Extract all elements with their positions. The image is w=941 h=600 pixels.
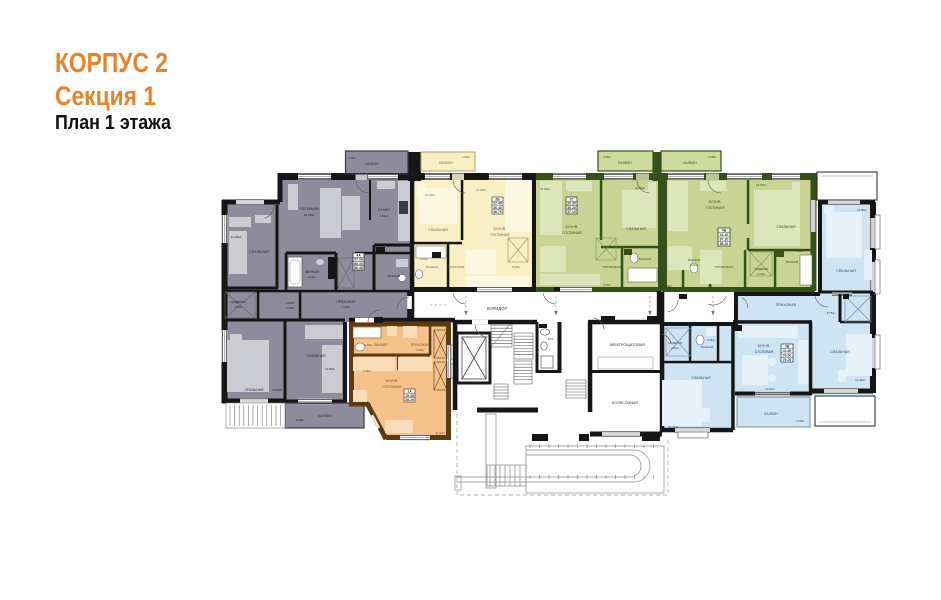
svg-text:79.29: 79.29 <box>783 358 792 362</box>
svg-text:ВАННАЯ: ВАННАЯ <box>701 345 713 349</box>
svg-text:3.40м²: 3.40м² <box>690 263 698 267</box>
svg-text:КОРИДОР: КОРИДОР <box>487 306 508 311</box>
svg-text:ВАННАЯ: ВАННАЯ <box>688 258 700 262</box>
svg-text:ПРИХОЖАЯ: ПРИХОЖАЯ <box>448 265 465 269</box>
svg-text:ВАННАЯ: ВАННАЯ <box>374 343 388 347</box>
svg-text:ВАННАЯ: ВАННАЯ <box>426 265 438 269</box>
svg-text:БАЛКОН: БАЛКОН <box>439 161 453 165</box>
svg-text:БАЛКОН: БАЛКОН <box>365 162 379 166</box>
svg-text:ГАРДЕРОБ: ГАРДЕРОБ <box>754 267 769 271</box>
svg-text:10.40м²: 10.40м² <box>765 387 775 391</box>
svg-text:12.45м²: 12.45м² <box>855 378 865 382</box>
svg-text:36.70: 36.70 <box>493 210 502 214</box>
svg-text:КУХНЯ-: КУХНЯ- <box>709 200 723 204</box>
svg-text:12.55м²: 12.55м² <box>272 388 282 392</box>
svg-text:БАЛКОН: БАЛКОН <box>683 161 697 165</box>
svg-text:3В: 3В <box>785 345 790 349</box>
svg-text:4.10м²: 4.10м² <box>308 275 316 279</box>
svg-text:87.20: 87.20 <box>720 238 729 242</box>
svg-text:КУХНЯ-: КУХНЯ- <box>566 225 580 229</box>
svg-text:37.10: 37.10 <box>567 210 576 214</box>
svg-text:КУХНЯ-: КУХНЯ- <box>494 227 508 231</box>
svg-text:2.60м²: 2.60м² <box>671 346 679 350</box>
svg-text:ВАННАЯ: ВАННАЯ <box>305 270 319 274</box>
svg-text:6.80м²: 6.80м² <box>380 214 389 218</box>
svg-text:5.00м²: 5.00м² <box>512 265 520 269</box>
svg-text:ПРИХОЖАЯ: ПРИХОЖАЯ <box>336 300 356 304</box>
svg-text:4.00м²: 4.00м² <box>664 284 672 288</box>
svg-text:ВАННАЯ: ВАННАЯ <box>639 257 651 261</box>
svg-text:3.55м²: 3.55м² <box>234 305 242 309</box>
svg-text:КУХНЯ-: КУХНЯ- <box>758 344 770 348</box>
svg-text:ПРИХОЖАЯ: ПРИХОЖАЯ <box>776 303 797 307</box>
svg-text:5.05м²: 5.05м² <box>363 369 371 373</box>
svg-text:ГОСТИНАЯ: ГОСТИНАЯ <box>706 206 725 210</box>
svg-text:5.20м²: 5.20м² <box>286 306 294 310</box>
svg-text:12.55м²: 12.55м² <box>325 367 335 371</box>
svg-text:4Б: 4Б <box>722 229 727 233</box>
svg-text:ВАННАЯ: ВАННАЯ <box>786 260 798 264</box>
svg-text:СПАЛЬНАЯ: СПАЛЬНАЯ <box>836 269 856 273</box>
svg-text:13.20м²: 13.20м² <box>231 235 242 239</box>
svg-text:СПАЛЬНАЯ: СПАЛЬНАЯ <box>307 354 326 358</box>
svg-text:ВАННАЯ: ВАННАЯ <box>388 274 400 278</box>
svg-text:88.45: 88.45 <box>354 266 363 270</box>
svg-text:13.70м²: 13.70м² <box>756 183 766 187</box>
svg-text:СТОЛОВАЯ: СТОЛОВАЯ <box>755 350 774 354</box>
svg-text:4.20м²: 4.20м² <box>420 257 428 261</box>
svg-text:4.20м²: 4.20м² <box>796 419 804 423</box>
svg-text:ПРИХОЖАЯ: ПРИХОЖАЯ <box>411 343 430 347</box>
svg-text:КОРПУС 2: КОРПУС 2 <box>55 47 168 78</box>
svg-text:11.20м²: 11.20м² <box>435 431 444 435</box>
svg-text:28.20: 28.20 <box>405 398 414 402</box>
svg-text:ЭЛЕКТРОЩИТОВАЯ: ЭЛЕКТРОЩИТОВАЯ <box>609 343 645 347</box>
svg-text:3.00м²: 3.00м² <box>416 348 424 352</box>
svg-text:7.20м²: 7.20м² <box>342 305 350 309</box>
svg-text:КУХ.: КУХ. <box>548 337 555 341</box>
svg-text:4.10м²: 4.10м² <box>364 343 372 347</box>
svg-text:План 1 этажа: План 1 этажа <box>55 112 172 134</box>
svg-text:КУХНЯ: КУХНЯ <box>378 208 390 212</box>
svg-text:Секция 1: Секция 1 <box>55 81 156 111</box>
svg-text:КОЛЛ: КОЛЛ <box>286 301 294 305</box>
svg-text:13.30м²: 13.30м² <box>476 188 486 192</box>
svg-text:СПАЛЬНАЯ: СПАЛЬНАЯ <box>691 376 711 380</box>
svg-text:ГОСТИНАЯ: ГОСТИНАЯ <box>300 207 319 211</box>
svg-text:КУХНЯ-: КУХНЯ- <box>386 379 400 383</box>
svg-text:13.40м²: 13.40м² <box>857 208 867 212</box>
svg-text:СПАЛЬНАЯ: СПАЛЬНАЯ <box>830 350 850 354</box>
svg-text:41.60: 41.60 <box>783 349 792 353</box>
svg-text:БАЛКОН: БАЛКОН <box>318 414 332 418</box>
svg-text:БАЛКОН: БАЛКОН <box>764 412 778 416</box>
svg-text:СПАЛЬНАЯ: СПАЛЬНАЯ <box>428 228 448 232</box>
svg-text:13.90м²: 13.90м² <box>540 187 550 191</box>
svg-text:ГАРДЕРОБ: ГАРДЕРОБ <box>668 341 683 345</box>
svg-text:8.75м²: 8.75м² <box>827 311 835 315</box>
svg-text:СПАЛЬНАЯ: СПАЛЬНАЯ <box>626 227 646 231</box>
svg-text:ПРИХОЖАЯ: ПРИХОЖАЯ <box>603 265 620 269</box>
svg-text:ГОСТИНАЯ: ГОСТИНАЯ <box>383 385 402 389</box>
svg-text:4.30м²: 4.30м² <box>296 418 304 422</box>
svg-text:СПАЛЬНАЯ: СПАЛЬНАЯ <box>245 388 264 392</box>
svg-text:5.00м²: 5.00м² <box>603 283 611 287</box>
svg-text:3.15м²: 3.15м² <box>707 338 715 342</box>
svg-text:78.00: 78.00 <box>783 354 792 358</box>
svg-text:88.40: 88.40 <box>720 242 729 246</box>
svg-text:43.40: 43.40 <box>720 233 729 237</box>
svg-text:КОЛЯСОЧНАЯ: КОЛЯСОЧНАЯ <box>612 401 638 405</box>
svg-text:18.70м²: 18.70м² <box>304 213 315 217</box>
svg-text:3.05м²: 3.05м² <box>708 155 716 159</box>
svg-text:10.10м²: 10.10м² <box>425 193 435 197</box>
svg-text:ПРИХОЖАЯ: ПРИХОЖАЯ <box>715 265 732 269</box>
svg-text:2.00м²: 2.00м² <box>757 272 765 276</box>
svg-text:3.05м²: 3.05м² <box>603 155 611 159</box>
svg-text:4.00м²: 4.00м² <box>796 249 804 253</box>
svg-text:ГОСТИНАЯ: ГОСТИНАЯ <box>491 233 510 237</box>
svg-text:БАЛКОН: БАЛКОН <box>618 161 632 165</box>
svg-text:10.25м²: 10.25м² <box>668 425 678 429</box>
svg-text:ГОСТИНАЯ: ГОСТИНАЯ <box>563 231 582 235</box>
svg-text:3.05м²: 3.05м² <box>462 155 470 159</box>
svg-text:10.10м²: 10.10м² <box>635 186 645 190</box>
svg-text:СПАЛЬНАЯ: СПАЛЬНАЯ <box>249 250 269 254</box>
svg-text:ГАРДЕРОБ: ГАРДЕРОБ <box>231 300 246 304</box>
svg-text:3.05м²: 3.05м² <box>348 156 356 160</box>
svg-text:СПАЛЬНАЯ: СПАЛЬНАЯ <box>776 225 796 229</box>
